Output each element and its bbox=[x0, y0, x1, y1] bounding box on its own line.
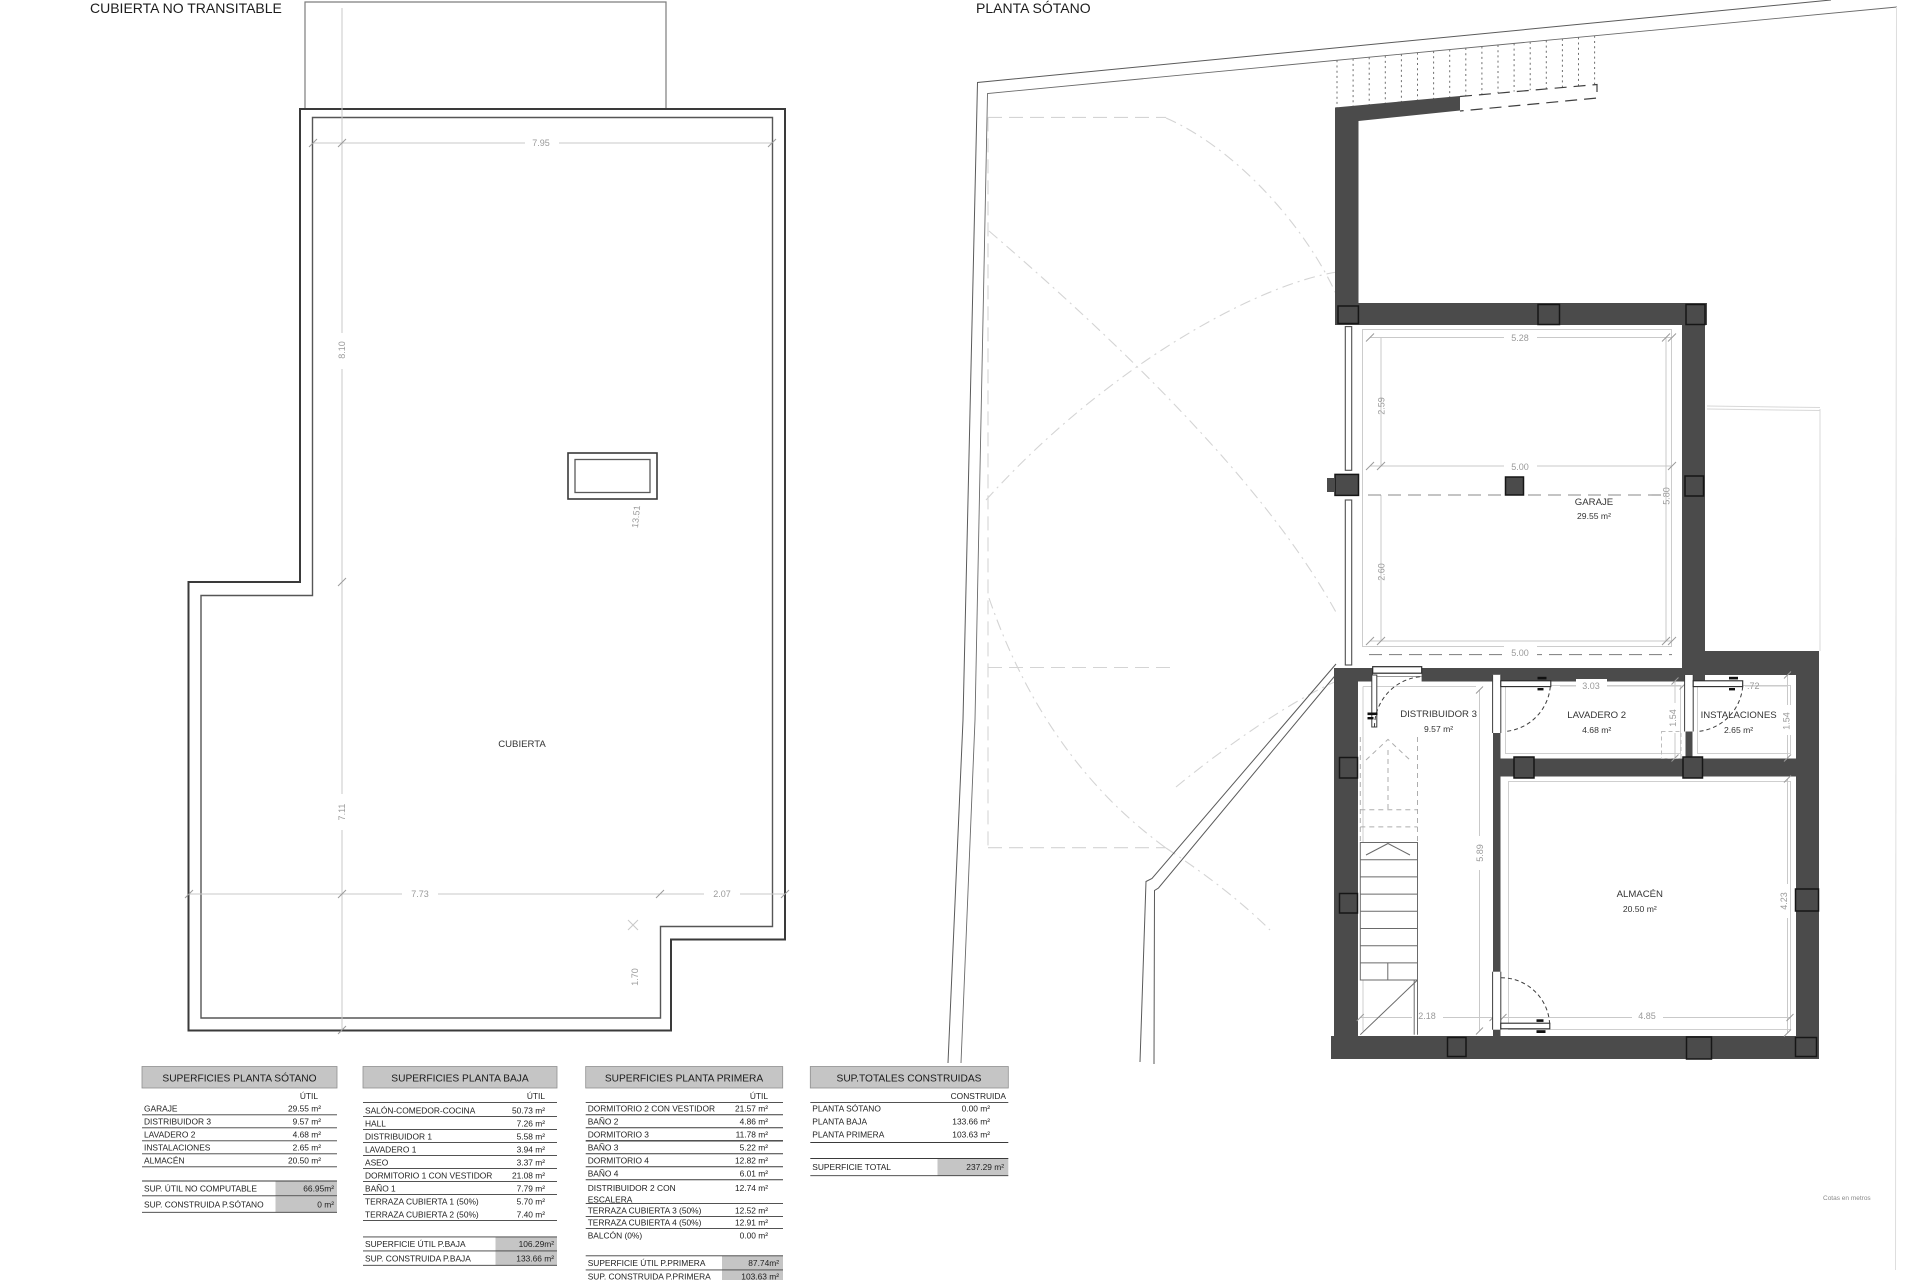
svg-text:ÚTIL: ÚTIL bbox=[750, 1091, 768, 1101]
svg-text:PLANTA BAJA: PLANTA BAJA bbox=[812, 1117, 867, 1127]
svg-text:DORMITORIO 4: DORMITORIO 4 bbox=[588, 1156, 650, 1166]
svg-text:ESCALERA: ESCALERA bbox=[588, 1194, 633, 1204]
svg-text:DISTRIBUIDOR 3: DISTRIBUIDOR 3 bbox=[144, 1117, 211, 1127]
svg-text:8.10: 8.10 bbox=[337, 341, 347, 359]
svg-text:21.08 m²: 21.08 m² bbox=[512, 1170, 545, 1180]
svg-text:5.00: 5.00 bbox=[1511, 462, 1529, 472]
svg-text:DISTRIBUIDOR 3: DISTRIBUIDOR 3 bbox=[1400, 709, 1477, 720]
svg-text:TERRAZA CUBIERTA 2 (50%): TERRAZA CUBIERTA 2 (50%) bbox=[365, 1209, 479, 1219]
svg-text:5.22 m²: 5.22 m² bbox=[740, 1143, 769, 1153]
svg-text:HALL: HALL bbox=[365, 1118, 386, 1128]
svg-text:DORMITORIO 1 CON VESTIDOR: DORMITORIO 1 CON VESTIDOR bbox=[365, 1170, 492, 1180]
svg-text:9.57 m²: 9.57 m² bbox=[1424, 724, 1453, 734]
svg-text:5.58 m²: 5.58 m² bbox=[517, 1131, 546, 1141]
svg-text:1.54: 1.54 bbox=[1668, 709, 1678, 727]
svg-text:9.57 m²: 9.57 m² bbox=[293, 1117, 322, 1127]
svg-text:BAÑO 4: BAÑO 4 bbox=[588, 1169, 619, 1179]
svg-text:2.65 m²: 2.65 m² bbox=[1724, 725, 1753, 735]
svg-text:SUPERFICIE TOTAL: SUPERFICIE TOTAL bbox=[812, 1162, 891, 1172]
svg-text:66.95m²: 66.95m² bbox=[303, 1184, 334, 1194]
svg-text:5.28: 5.28 bbox=[1511, 333, 1529, 343]
svg-text:Cotas en metros: Cotas en metros bbox=[1823, 1195, 1871, 1202]
svg-text:12.82 m²: 12.82 m² bbox=[735, 1156, 768, 1166]
svg-text:5.80: 5.80 bbox=[1662, 487, 1672, 505]
svg-text:DORMITORIO 2 CON VESTIDOR: DORMITORIO 2 CON VESTIDOR bbox=[588, 1104, 715, 1114]
svg-text:ALMACÉN: ALMACÉN bbox=[144, 1156, 185, 1166]
svg-text:7.11: 7.11 bbox=[337, 804, 347, 821]
svg-text:103.63 m²: 103.63 m² bbox=[952, 1130, 990, 1140]
svg-text:6.01 m²: 6.01 m² bbox=[740, 1169, 769, 1179]
svg-text:12.74 m²: 12.74 m² bbox=[735, 1183, 768, 1193]
svg-text:4.68 m²: 4.68 m² bbox=[293, 1130, 322, 1140]
svg-text:1.54: 1.54 bbox=[1782, 712, 1792, 730]
svg-text:TERRAZA CUBIERTA 3 (50%): TERRAZA CUBIERTA 3 (50%) bbox=[588, 1205, 702, 1215]
svg-text:GARAJE: GARAJE bbox=[144, 1104, 178, 1114]
svg-text:7.26 m²: 7.26 m² bbox=[517, 1118, 546, 1128]
svg-text:DISTRIBUIDOR 1: DISTRIBUIDOR 1 bbox=[365, 1131, 432, 1141]
svg-text:4.68 m²: 4.68 m² bbox=[1582, 725, 1611, 735]
svg-text:50.73 m²: 50.73 m² bbox=[512, 1105, 545, 1115]
svg-text:SUPERFICIES PLANTA BAJA: SUPERFICIES PLANTA BAJA bbox=[391, 1074, 529, 1085]
svg-text:SUP. CONSTRUIDA P.SÓTANO: SUP. CONSTRUIDA P.SÓTANO bbox=[144, 1199, 264, 1209]
svg-text:7.40 m²: 7.40 m² bbox=[517, 1209, 546, 1219]
svg-text:3.37 m²: 3.37 m² bbox=[517, 1157, 546, 1167]
svg-text:ALMACÉN: ALMACÉN bbox=[1617, 889, 1663, 900]
svg-text:LAVADERO 2: LAVADERO 2 bbox=[144, 1130, 196, 1140]
svg-text:7.95: 7.95 bbox=[532, 138, 550, 148]
svg-text:5.00: 5.00 bbox=[1511, 648, 1529, 658]
svg-text:BALCÓN (0%): BALCÓN (0%) bbox=[588, 1230, 643, 1240]
svg-text:SUP. ÚTIL NO COMPUTABLE: SUP. ÚTIL NO COMPUTABLE bbox=[144, 1184, 257, 1194]
svg-text:SUPERFICIES PLANTA SÓTANO: SUPERFICIES PLANTA SÓTANO bbox=[162, 1072, 316, 1085]
svg-text:BAÑO 2: BAÑO 2 bbox=[588, 1117, 619, 1127]
svg-text:INSTALACIONES: INSTALACIONES bbox=[1701, 710, 1777, 721]
svg-text:12.91 m²: 12.91 m² bbox=[735, 1217, 768, 1227]
svg-text:0 m²: 0 m² bbox=[317, 1199, 334, 1209]
svg-text:29.55 m²: 29.55 m² bbox=[288, 1104, 321, 1114]
svg-text:DISTRIBUIDOR 2 CON: DISTRIBUIDOR 2 CON bbox=[588, 1183, 676, 1193]
svg-text:.72: .72 bbox=[1747, 681, 1760, 691]
svg-text:4.86 m²: 4.86 m² bbox=[740, 1117, 769, 1127]
svg-text:BAÑO 3: BAÑO 3 bbox=[588, 1143, 619, 1153]
svg-text:TERRAZA CUBIERTA 4 (50%): TERRAZA CUBIERTA 4 (50%) bbox=[588, 1217, 702, 1227]
svg-text:2.07: 2.07 bbox=[713, 889, 731, 899]
svg-text:CUBIERTA: CUBIERTA bbox=[498, 739, 546, 750]
svg-text:SUPERFICIE ÚTIL P.BAJA: SUPERFICIE ÚTIL P.BAJA bbox=[365, 1239, 466, 1249]
svg-text:237.29 m²: 237.29 m² bbox=[966, 1162, 1004, 1172]
svg-text:5.70 m²: 5.70 m² bbox=[517, 1196, 546, 1206]
svg-text:DORMITORIO 3: DORMITORIO 3 bbox=[588, 1130, 650, 1140]
svg-text:4.23: 4.23 bbox=[1779, 892, 1789, 910]
svg-text:PLANTA SÓTANO: PLANTA SÓTANO bbox=[812, 1104, 881, 1114]
svg-text:106.29m²: 106.29m² bbox=[519, 1239, 555, 1249]
svg-text:0.00 m²: 0.00 m² bbox=[962, 1104, 991, 1114]
svg-text:2.18: 2.18 bbox=[1418, 1011, 1436, 1021]
svg-text:SUP. CONSTRUIDA P.BAJA: SUP. CONSTRUIDA P.BAJA bbox=[365, 1253, 471, 1263]
svg-text:INSTALACIONES: INSTALACIONES bbox=[144, 1143, 211, 1153]
svg-text:LAVADERO 1: LAVADERO 1 bbox=[365, 1144, 417, 1154]
svg-text:4.85: 4.85 bbox=[1638, 1011, 1656, 1021]
svg-text:7.73: 7.73 bbox=[411, 889, 429, 899]
svg-text:2.65 m²: 2.65 m² bbox=[293, 1143, 322, 1153]
svg-text:87.74m²: 87.74m² bbox=[748, 1258, 779, 1268]
svg-text:TERRAZA CUBIERTA 1 (50%): TERRAZA CUBIERTA 1 (50%) bbox=[365, 1196, 479, 1206]
svg-text:SUPERFICIES PLANTA PRIMERA: SUPERFICIES PLANTA PRIMERA bbox=[605, 1074, 764, 1085]
svg-text:PLANTA SÓTANO: PLANTA SÓTANO bbox=[976, 0, 1091, 16]
svg-text:20.50 m²: 20.50 m² bbox=[288, 1156, 321, 1166]
svg-text:GARAJE: GARAJE bbox=[1575, 497, 1613, 508]
svg-text:SALÓN-COMEDOR-COCINA: SALÓN-COMEDOR-COCINA bbox=[365, 1105, 476, 1115]
svg-text:1.70: 1.70 bbox=[630, 968, 640, 986]
svg-text:2.59: 2.59 bbox=[1377, 397, 1387, 415]
svg-text:21.57 m²: 21.57 m² bbox=[735, 1104, 768, 1114]
svg-text:SUP. CONSTRUIDA P.PRIMERA: SUP. CONSTRUIDA P.PRIMERA bbox=[588, 1272, 711, 1280]
svg-text:CUBIERTA NO TRANSITABLE: CUBIERTA NO TRANSITABLE bbox=[90, 0, 282, 16]
svg-text:SUPERFICIE ÚTIL P.PRIMERA: SUPERFICIE ÚTIL P.PRIMERA bbox=[588, 1258, 706, 1268]
svg-text:133.66 m²: 133.66 m² bbox=[952, 1117, 990, 1127]
svg-text:ÚTIL: ÚTIL bbox=[300, 1091, 318, 1101]
svg-text:133.66 m²: 133.66 m² bbox=[516, 1253, 554, 1263]
svg-text:BAÑO 1: BAÑO 1 bbox=[365, 1183, 396, 1193]
svg-text:20.50 m²: 20.50 m² bbox=[1623, 904, 1657, 914]
svg-text:LAVADERO 2: LAVADERO 2 bbox=[1567, 710, 1626, 721]
svg-text:2.60: 2.60 bbox=[1377, 563, 1387, 581]
svg-text:CONSTRUIDA: CONSTRUIDA bbox=[951, 1091, 1007, 1101]
svg-text:29.55 m²: 29.55 m² bbox=[1577, 511, 1611, 521]
svg-text:7.79 m²: 7.79 m² bbox=[517, 1183, 546, 1193]
svg-text:0.00 m²: 0.00 m² bbox=[740, 1230, 769, 1240]
svg-text:3.03: 3.03 bbox=[1582, 681, 1600, 691]
svg-text:11.78 m²: 11.78 m² bbox=[736, 1130, 769, 1140]
svg-text:5.89: 5.89 bbox=[1475, 844, 1485, 862]
svg-text:12.52 m²: 12.52 m² bbox=[735, 1205, 768, 1215]
svg-text:SUP.TOTALES CONSTRUIDAS: SUP.TOTALES CONSTRUIDAS bbox=[837, 1074, 982, 1085]
svg-text:3.94 m²: 3.94 m² bbox=[517, 1144, 546, 1154]
svg-text:ASEO: ASEO bbox=[365, 1157, 389, 1167]
svg-text:PLANTA PRIMERA: PLANTA PRIMERA bbox=[812, 1130, 884, 1140]
svg-text:ÚTIL: ÚTIL bbox=[527, 1091, 545, 1101]
svg-text:103.63 m²: 103.63 m² bbox=[741, 1272, 779, 1280]
